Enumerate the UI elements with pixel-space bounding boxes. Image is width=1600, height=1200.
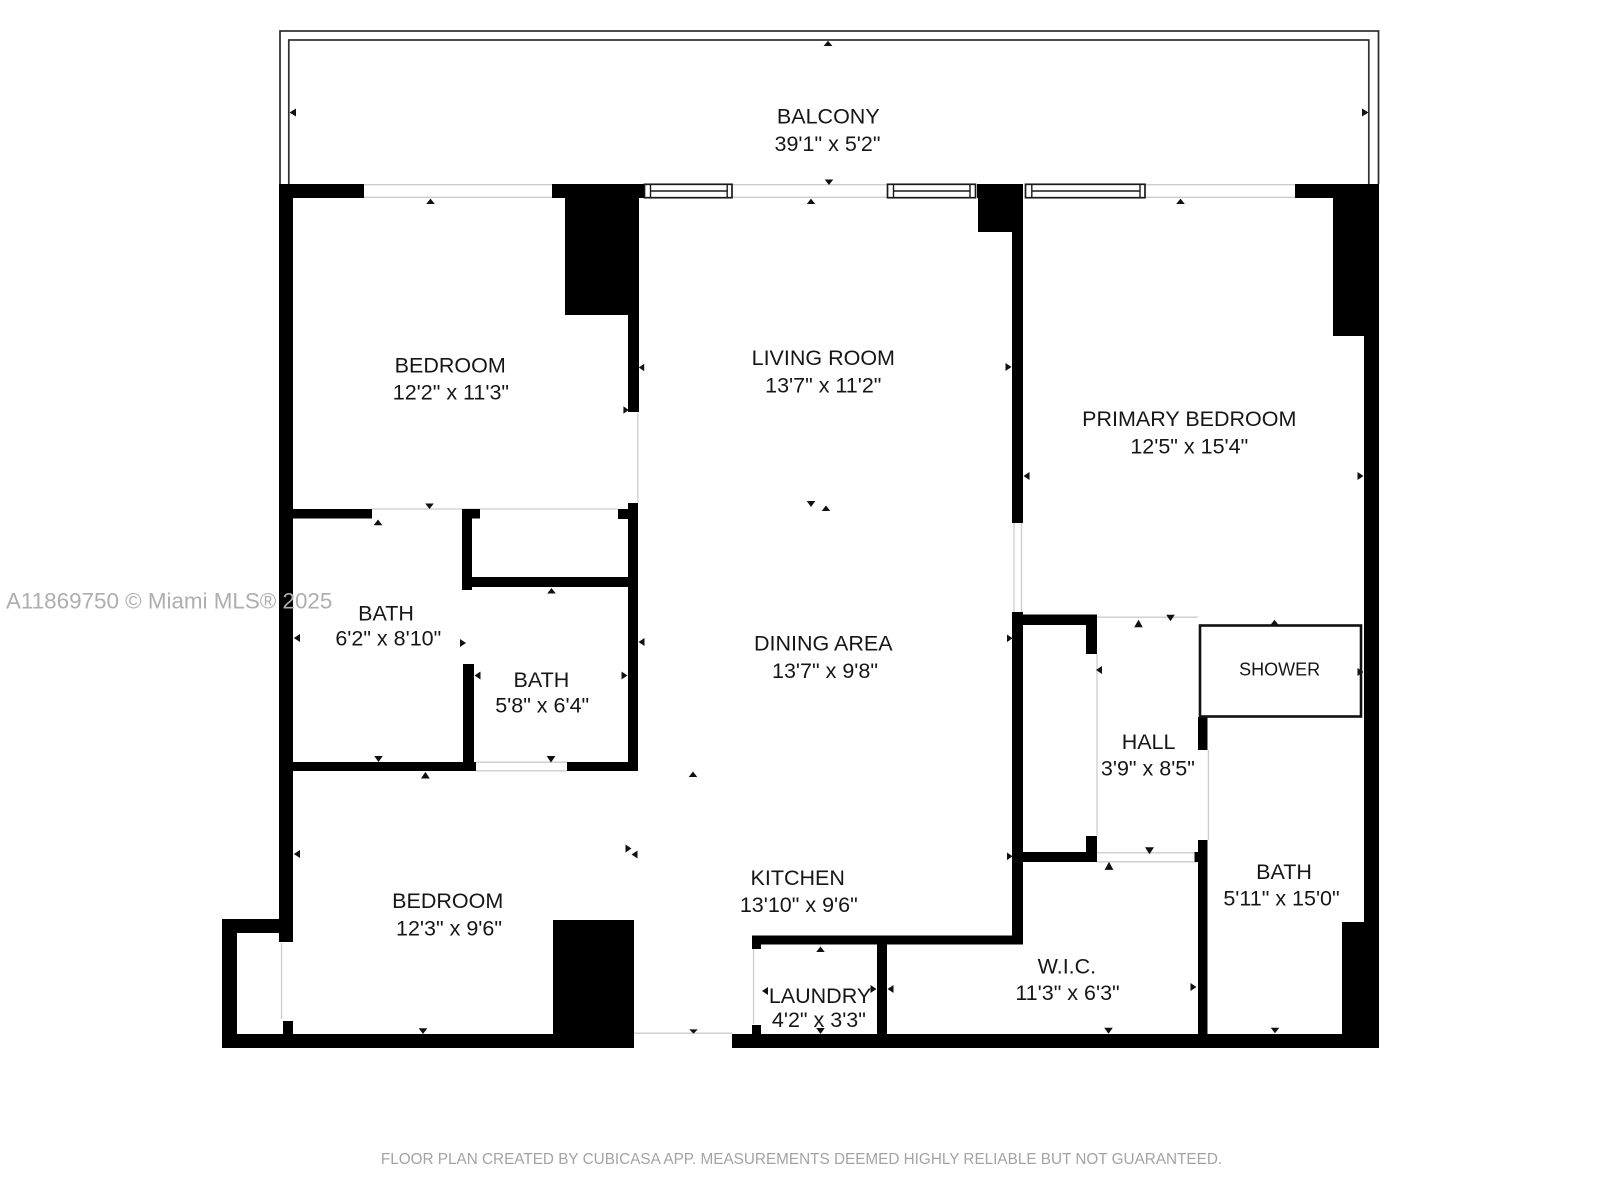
svg-text:12'2" x 11'3": 12'2" x 11'3" xyxy=(393,381,509,405)
svg-text:LAUNDRY: LAUNDRY xyxy=(769,984,871,1008)
svg-text:4'2" x 3'3": 4'2" x 3'3" xyxy=(772,1008,866,1032)
svg-text:DINING AREA: DINING AREA xyxy=(754,632,893,656)
svg-text:12'5" x 15'4": 12'5" x 15'4" xyxy=(1130,435,1248,459)
svg-text:3'9" x 8'5": 3'9" x 8'5" xyxy=(1101,757,1195,781)
svg-text:BATH: BATH xyxy=(514,668,570,692)
svg-text:KITCHEN: KITCHEN xyxy=(751,866,845,890)
svg-text:BATH: BATH xyxy=(1256,860,1312,884)
svg-text:13'7" x 11'2": 13'7" x 11'2" xyxy=(765,374,881,398)
svg-text:5'11" x 15'0": 5'11" x 15'0" xyxy=(1223,886,1339,910)
svg-text:PRIMARY BEDROOM: PRIMARY BEDROOM xyxy=(1082,407,1296,431)
svg-text:HALL: HALL xyxy=(1122,730,1176,754)
svg-text:BATH: BATH xyxy=(358,601,414,625)
svg-text:BEDROOM: BEDROOM xyxy=(395,354,506,378)
svg-text:5'8" x 6'4": 5'8" x 6'4" xyxy=(495,694,589,718)
svg-text:LIVING ROOM: LIVING ROOM xyxy=(752,346,895,370)
svg-text:6'2" x 8'10": 6'2" x 8'10" xyxy=(335,627,441,651)
svg-text:11'3" x 6'3": 11'3" x 6'3" xyxy=(1015,981,1119,1005)
svg-text:FLOOR PLAN CREATED BY CUBICASA: FLOOR PLAN CREATED BY CUBICASA APP. MEAS… xyxy=(381,1151,1222,1168)
svg-text:W.I.C.: W.I.C. xyxy=(1038,955,1097,979)
svg-text:39'1" x 5'2": 39'1" x 5'2" xyxy=(775,132,881,156)
svg-text:13'10" x 9'6": 13'10" x 9'6" xyxy=(740,893,858,917)
svg-text:BEDROOM: BEDROOM xyxy=(392,889,503,913)
svg-text:SHOWER: SHOWER xyxy=(1239,660,1320,680)
svg-text:12'3" x 9'6": 12'3" x 9'6" xyxy=(396,916,502,940)
svg-text:BALCONY: BALCONY xyxy=(777,105,880,129)
svg-text:A11869750 © Miami MLS® 2025: A11869750 © Miami MLS® 2025 xyxy=(6,589,332,614)
svg-text:13'7" x 9'8": 13'7" x 9'8" xyxy=(772,659,878,683)
